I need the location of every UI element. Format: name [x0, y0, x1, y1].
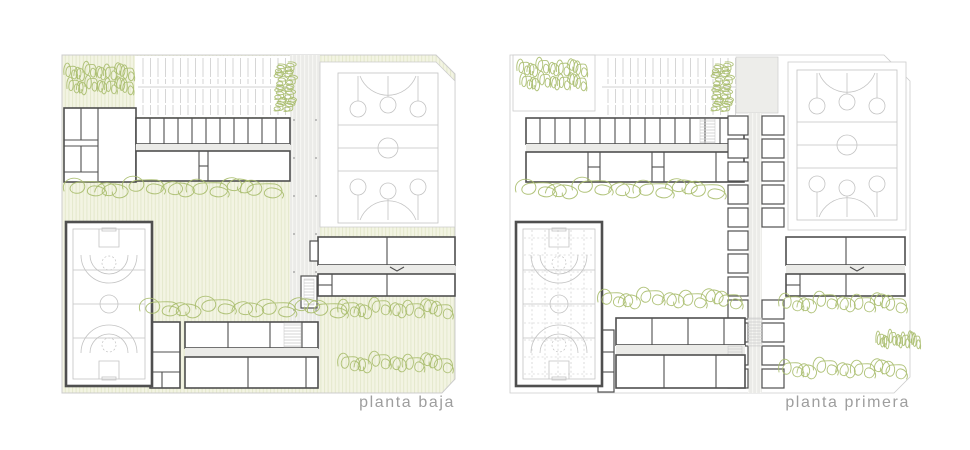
stair-core	[748, 318, 762, 346]
corridor	[185, 348, 318, 357]
corridor	[748, 113, 762, 393]
hall-roof	[736, 57, 778, 113]
gymnasium	[516, 222, 602, 386]
corridor	[136, 144, 290, 151]
stair-core	[284, 323, 301, 347]
south-classroom-wing	[598, 318, 745, 392]
plan-ground-floor	[62, 55, 455, 393]
north-classroom-wing	[526, 118, 744, 182]
corridor	[786, 265, 905, 274]
plan-label-first-floor: planta primera	[510, 394, 910, 412]
changing-rooms	[150, 322, 180, 388]
corridor	[318, 265, 455, 274]
east-classroom-wing	[310, 237, 455, 296]
outdoor-sports-court	[320, 62, 455, 227]
corridor	[616, 345, 745, 355]
parking-rows	[135, 56, 290, 117]
east-classroom-wing	[786, 237, 905, 296]
north-classroom-wing	[136, 118, 290, 181]
plan-label-ground-floor: planta baja	[62, 394, 455, 412]
drawing-sheet: planta baja planta primera	[0, 0, 970, 450]
outdoor-sports-court	[788, 62, 906, 230]
floor-plans-svg	[0, 0, 970, 450]
south-classroom-wing	[150, 322, 318, 388]
plan-first-floor	[510, 55, 921, 393]
administration-block	[64, 108, 136, 182]
corridor	[526, 144, 744, 152]
gymnasium	[66, 222, 152, 386]
stair-core	[700, 119, 715, 143]
